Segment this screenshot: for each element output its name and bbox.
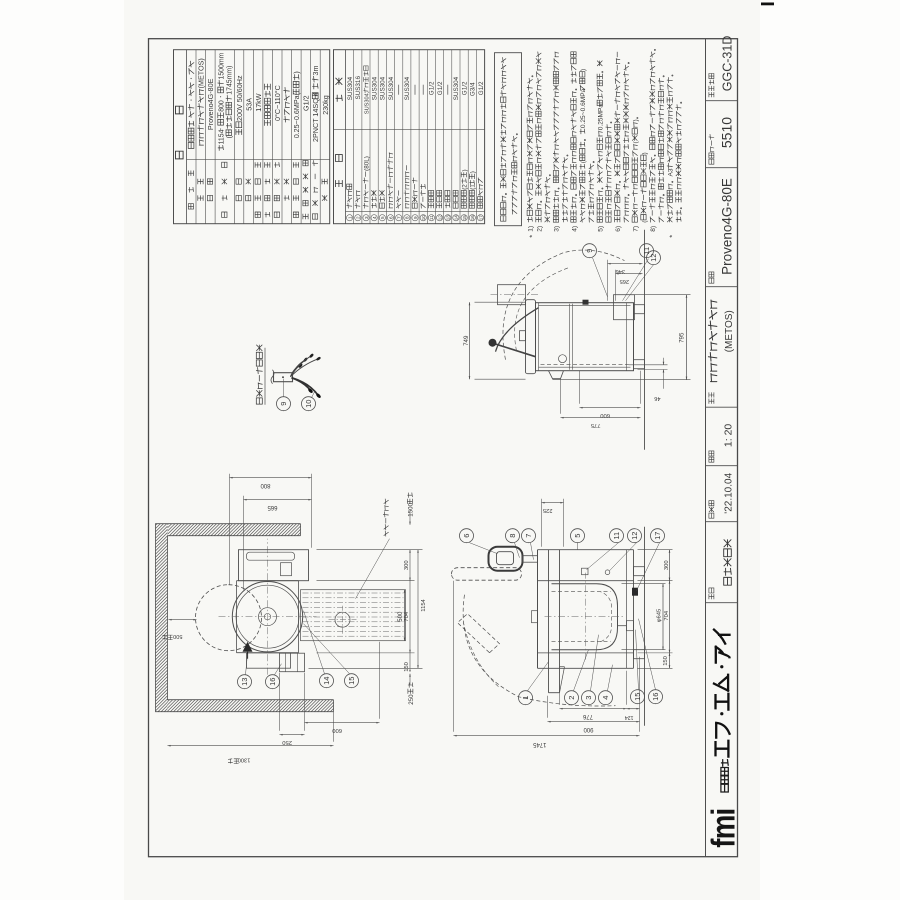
svg-text:600: 600 (600, 412, 610, 418)
svg-text:SUS304: SUS304 (404, 76, 411, 100)
svg-text:15: 15 (462, 215, 467, 221)
svg-text:0.25~0.6MPa(: 0.25~0.6MPa( (292, 92, 301, 138)
svg-text:12: 12 (630, 532, 639, 540)
svg-text:15: 15 (347, 677, 356, 685)
svg-text:776: 776 (582, 713, 593, 719)
svg-text:3: 3 (364, 216, 369, 219)
svg-text:265: 265 (620, 278, 629, 284)
svg-text:1500mm: 1500mm (219, 52, 226, 79)
svg-text:3): 3) (554, 226, 561, 232)
svg-text:G1/2: G1/2 (429, 81, 436, 95)
svg-text:): ) (580, 69, 587, 71)
svg-text:250: 250 (408, 694, 415, 705)
svg-text:G1/2: G1/2 (437, 81, 444, 95)
svg-text:(80L): (80L) (363, 156, 370, 171)
svg-text:1154: 1154 (219, 129, 226, 144)
svg-text:6): 6) (615, 226, 622, 232)
svg-text:775: 775 (591, 422, 601, 428)
svg-text:1: 20: 1: 20 (723, 424, 735, 448)
svg-text:600: 600 (332, 727, 342, 733)
svg-text:*: * (668, 235, 677, 238)
svg-text:6: 6 (462, 534, 471, 538)
svg-text:12: 12 (649, 254, 658, 262)
svg-text:225: 225 (543, 507, 553, 513)
svg-text:9: 9 (279, 402, 288, 406)
svg-text:8): 8) (650, 226, 657, 232)
svg-text:): ) (292, 71, 301, 73)
svg-text:9: 9 (585, 249, 594, 253)
svg-text:): ) (461, 169, 468, 171)
svg-text:GGC-31D: GGC-31D (721, 36, 735, 92)
svg-text:749: 749 (463, 335, 470, 346)
svg-text:300: 300 (664, 560, 670, 570)
svg-text:704: 704 (664, 610, 670, 620)
svg-text:'22.10.04: '22.10.04 (724, 472, 735, 513)
svg-text:10: 10 (304, 400, 313, 408)
svg-text:fmi: fmi (705, 809, 742, 848)
svg-text:46: 46 (654, 395, 660, 401)
svg-text:7): 7) (633, 226, 640, 232)
svg-text:2: 2 (567, 696, 576, 700)
svg-text:11: 11 (642, 247, 651, 255)
svg-text:230kg: 230kg (321, 95, 330, 115)
svg-text:13: 13 (240, 678, 249, 686)
svg-text:1: 1 (347, 216, 352, 219)
svg-text:0.25~0.6MPa: 0.25~0.6MPa (580, 88, 587, 128)
svg-text:SUS304: SUS304 (371, 76, 378, 100)
svg-text:17: 17 (478, 215, 483, 221)
svg-text:1745mm): 1745mm) (227, 66, 234, 95)
svg-text:3: 3 (584, 696, 593, 700)
svg-text:16: 16 (470, 215, 475, 221)
svg-text:14: 14 (322, 677, 331, 685)
svg-text:800: 800 (219, 100, 226, 112)
svg-text:1500: 1500 (408, 502, 415, 516)
svg-text:): ) (641, 152, 648, 154)
svg-text:17kW: 17kW (254, 93, 263, 112)
svg-text:704: 704 (404, 611, 410, 621)
svg-text:*: * (528, 235, 537, 238)
svg-text:0°C~110°C: 0°C~110°C (273, 85, 282, 121)
svg-text:(2: (2 (461, 184, 468, 190)
svg-text:9: 9 (413, 216, 418, 219)
svg-text:13: 13 (446, 215, 451, 221)
svg-text:2PNCT 14SQ 4: 2PNCT 14SQ 4 (311, 92, 320, 142)
svg-text:800: 800 (260, 482, 271, 488)
svg-text:(METOS): (METOS) (724, 310, 735, 352)
svg-text:5: 5 (380, 216, 385, 219)
svg-text:16: 16 (651, 693, 660, 701)
svg-text:500: 500 (173, 633, 182, 639)
svg-text:8: 8 (508, 534, 517, 538)
svg-text:1300: 1300 (238, 757, 251, 763)
svg-text:4: 4 (372, 216, 377, 219)
svg-text:11: 11 (429, 215, 434, 220)
svg-text:4): 4) (571, 226, 578, 232)
svg-text:5): 5) (598, 226, 605, 232)
svg-text:SUS304: SUS304 (453, 76, 460, 100)
svg-text:665: 665 (267, 504, 278, 510)
svg-text:3m: 3m (311, 66, 320, 76)
svg-text:17: 17 (653, 532, 662, 540)
svg-text:8: 8 (405, 216, 410, 219)
svg-text:G3/4: G3/4 (470, 82, 477, 96)
svg-text:G1/2: G1/2 (461, 81, 468, 95)
svg-text:7: 7 (524, 534, 533, 538)
svg-text:11: 11 (612, 532, 621, 540)
svg-text:φ645: φ645 (657, 609, 663, 622)
svg-text:1154: 1154 (421, 598, 427, 611)
svg-text:53A: 53A (244, 98, 253, 111)
svg-text:SUS304: SUS304 (388, 76, 395, 100)
svg-text:14: 14 (454, 215, 459, 221)
svg-text:346: 346 (616, 268, 625, 274)
svg-text:SUS304: SUS304 (347, 76, 354, 100)
svg-text:1745: 1745 (532, 741, 546, 747)
svg-text:250: 250 (282, 739, 292, 745)
svg-text:5510: 5510 (719, 117, 735, 148)
svg-text:1: 1 (521, 696, 530, 700)
svg-text:): ) (633, 119, 640, 121)
svg-text:200V 50/60Hz: 200V 50/60Hz (235, 75, 244, 121)
svg-text:4: 4 (601, 696, 610, 700)
svg-text:0.25MPa: 0.25MPa (598, 104, 605, 131)
svg-text:150: 150 (404, 662, 410, 672)
svg-text:15: 15 (633, 693, 642, 701)
svg-text:6: 6 (388, 216, 393, 219)
svg-text:5: 5 (573, 534, 582, 538)
svg-text:2): 2) (536, 226, 543, 232)
svg-text:16: 16 (268, 678, 277, 686)
svg-text:SUS304,: SUS304, (364, 91, 370, 114)
svg-text:300: 300 (404, 560, 410, 570)
svg-text:150: 150 (663, 656, 669, 666)
svg-text:1): 1) (528, 226, 535, 232)
svg-text:Proveno4G-80E: Proveno4G-80E (720, 178, 735, 275)
svg-text:7: 7 (397, 216, 402, 219)
svg-text:12: 12 (437, 215, 442, 221)
svg-text:900: 900 (583, 726, 594, 732)
svg-text:A3: A3 (668, 168, 675, 176)
svg-text:G1/2: G1/2 (302, 95, 311, 111)
svg-text:10: 10 (421, 215, 426, 221)
svg-text:SUS316: SUS316 (355, 76, 362, 100)
svg-text:795: 795 (679, 332, 686, 343)
svg-text:Proveno4G-80E: Proveno4G-80E (206, 78, 215, 130)
svg-text:2: 2 (356, 216, 361, 219)
svg-text:(METOS): (METOS) (197, 58, 206, 88)
svg-text:): ) (470, 171, 477, 173)
svg-text:124: 124 (625, 714, 634, 720)
svg-text:SUS304: SUS304 (380, 76, 387, 100)
svg-text:G1/2: G1/2 (478, 81, 485, 95)
